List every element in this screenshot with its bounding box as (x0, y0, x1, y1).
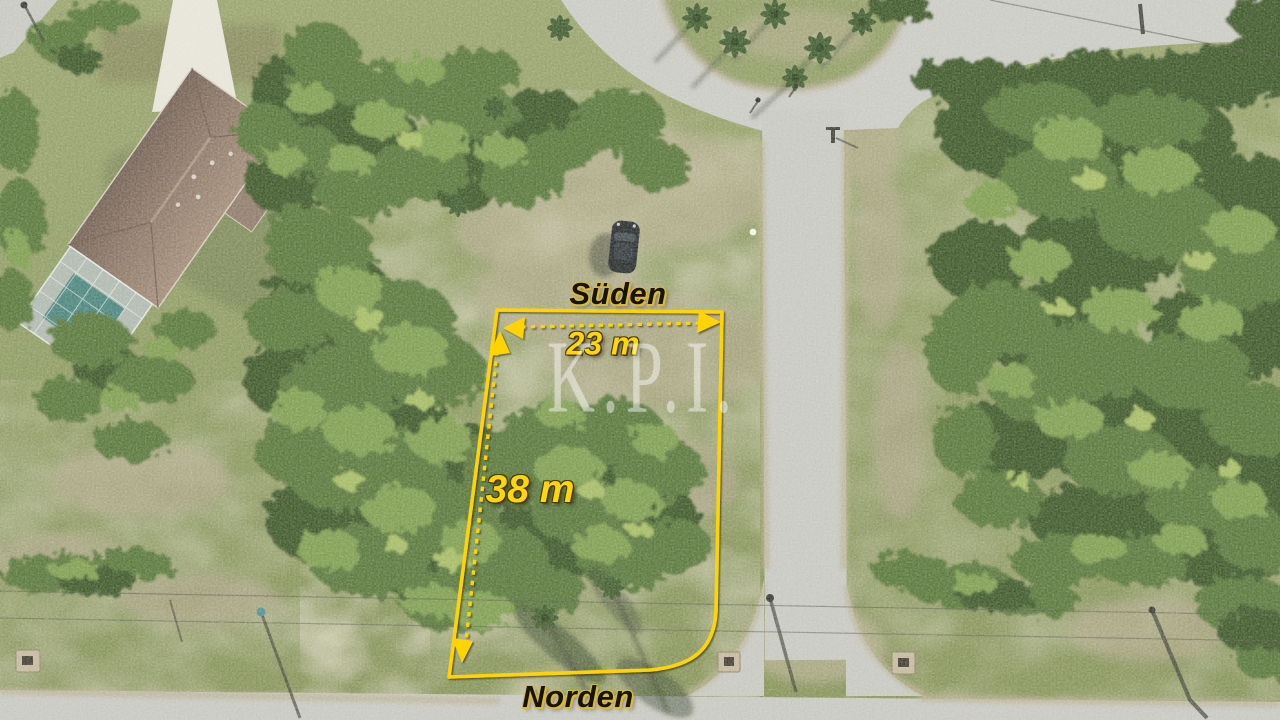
aerial-photo-stage: Süden 23 m 38 m Norden K.P.I. (0, 0, 1280, 720)
aerial-photo (0, 0, 1280, 720)
